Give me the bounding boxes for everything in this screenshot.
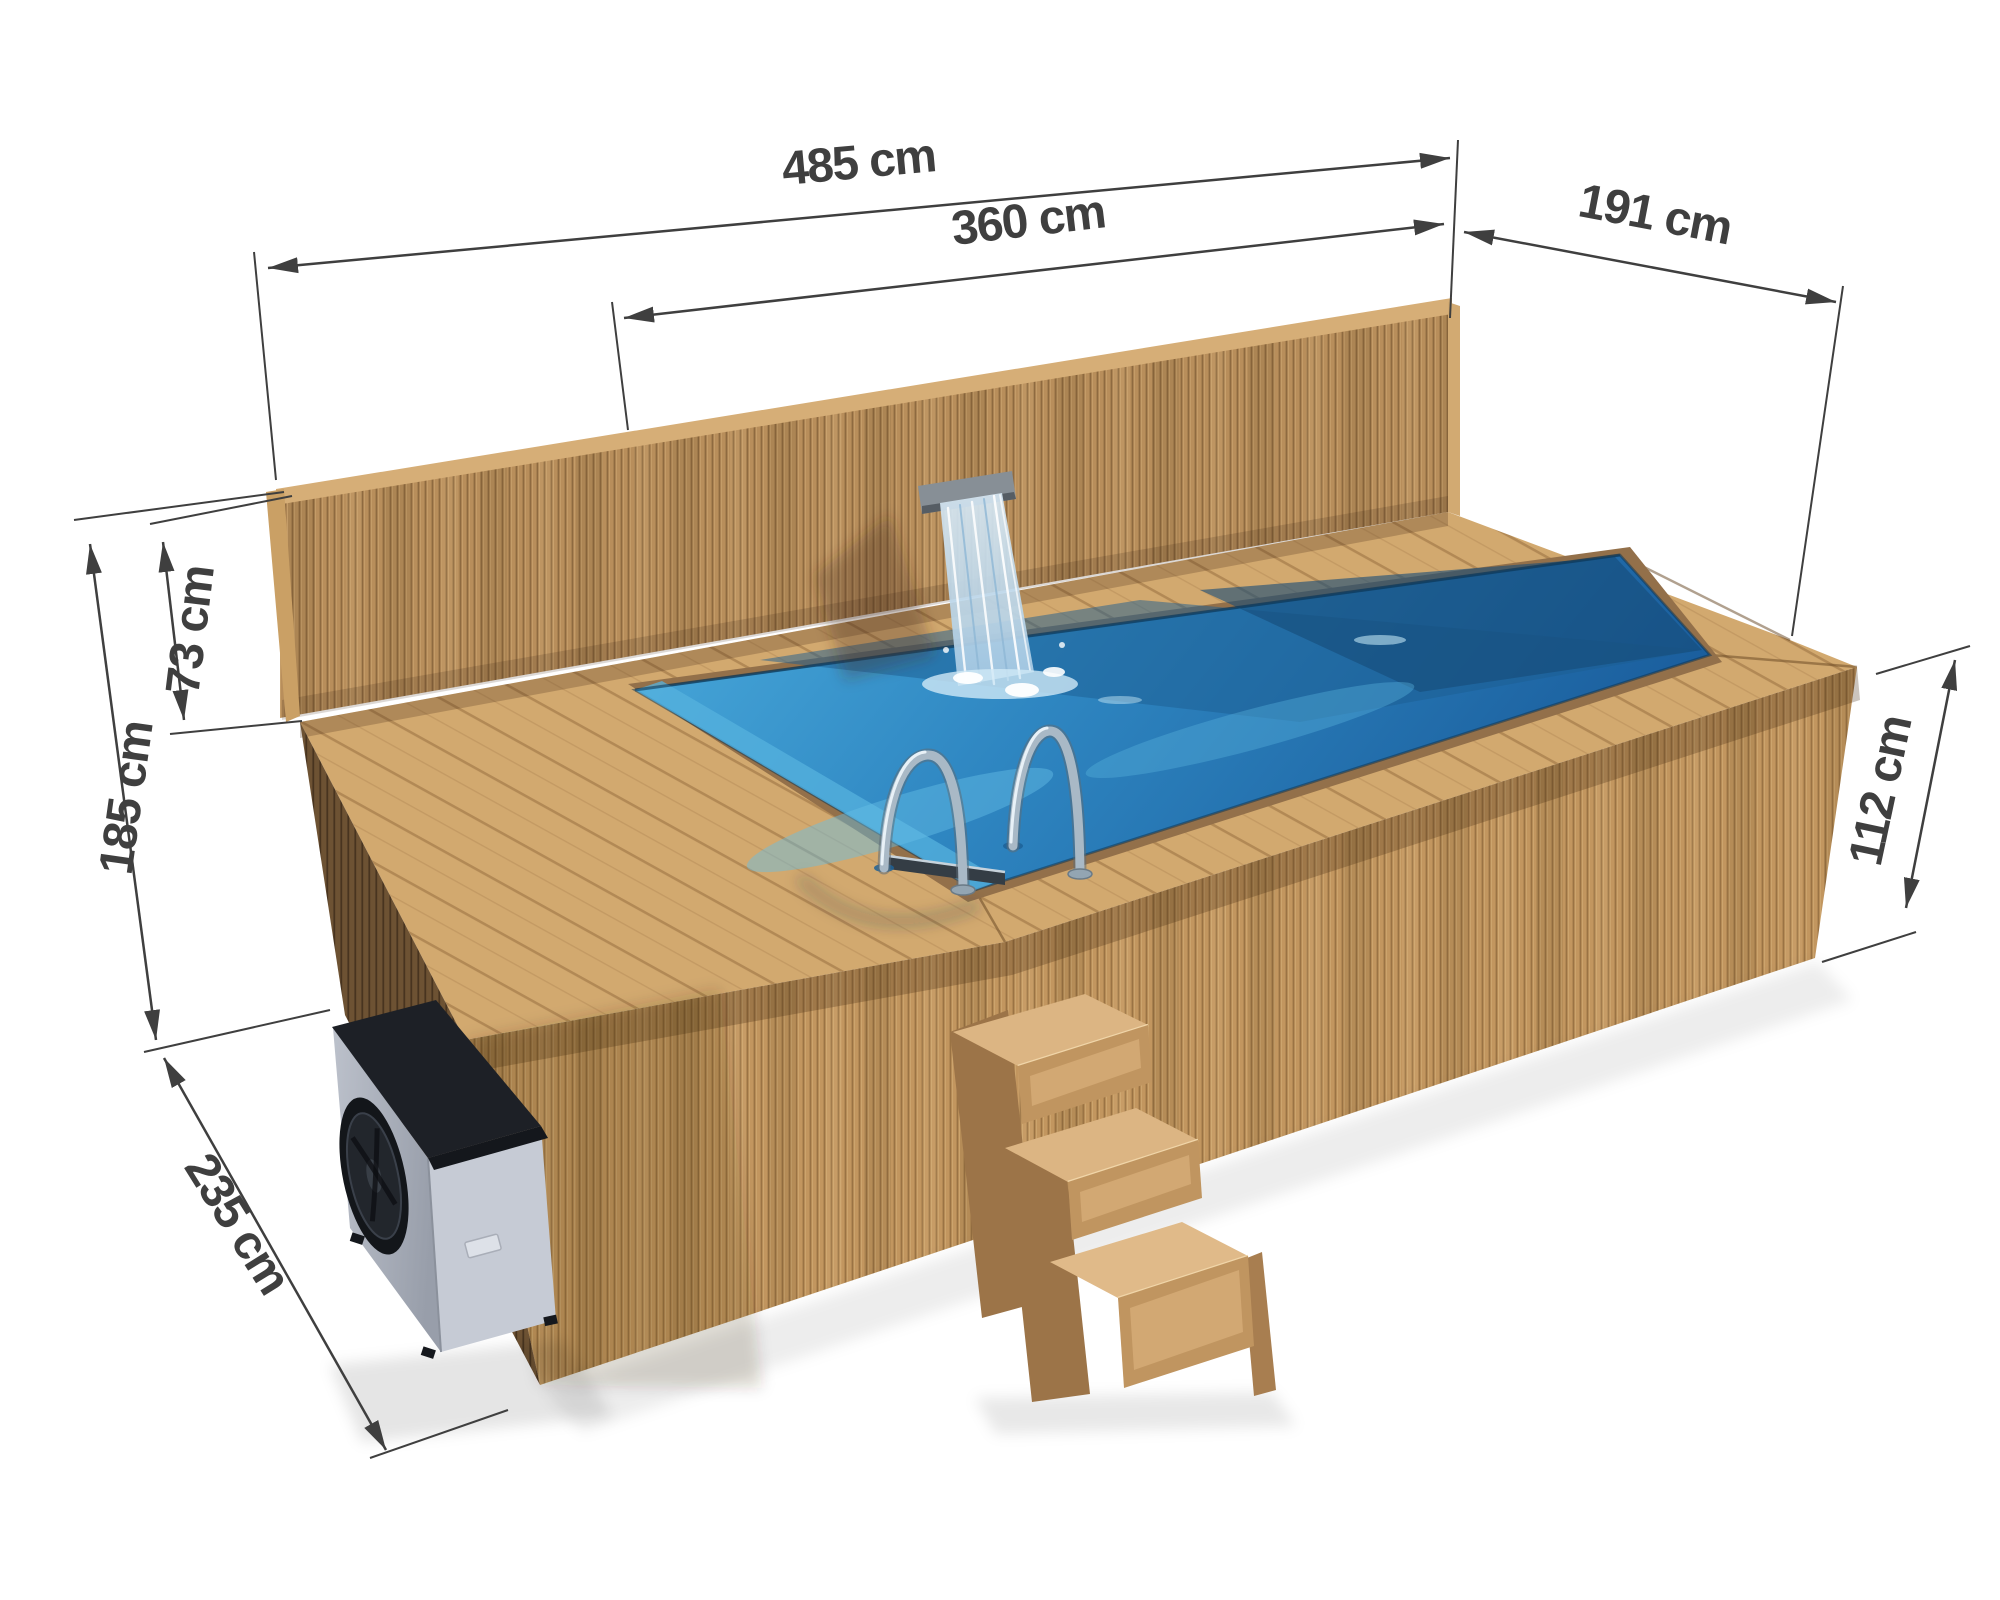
dimension-185: 185 cm [90, 544, 164, 1040]
water-glint-2 [1098, 696, 1142, 704]
splash-3 [1043, 667, 1065, 677]
dimension-label-ground-depth: 235 cm [174, 1145, 300, 1304]
steps-ground-shadow [975, 1392, 1296, 1434]
dimension-label-total-height: 185 cm [90, 718, 164, 878]
ladder-flange-2 [1068, 869, 1092, 879]
ext-485-left [254, 252, 276, 480]
dimension-label-inner-length: 360 cm [949, 185, 1108, 256]
splash-2 [1005, 683, 1039, 697]
droplet [943, 647, 949, 653]
ext-112-top [1876, 646, 1970, 674]
droplet-2 [1059, 642, 1065, 648]
dimension-label-body-height: 112 cm [1839, 711, 1922, 870]
ext-191-right [1792, 286, 1843, 636]
ext-73-bottom [170, 721, 302, 734]
dimension-label-width: 191 cm [1574, 174, 1735, 255]
ext-185-bottom [144, 1010, 330, 1052]
dimension-label-overall-length: 485 cm [780, 129, 938, 196]
pool-render: 485 cm 360 cm 191 cm 73 cm 185 cm 235 cm… [0, 0, 2000, 1600]
dimension-191: 191 cm [1464, 174, 1836, 302]
ext-360-left [612, 302, 628, 430]
ext-112-bottom [1822, 932, 1916, 962]
dimension-73: 73 cm [156, 542, 224, 720]
water-glint [1354, 635, 1406, 645]
ladder-flange [951, 885, 975, 895]
dimension-485: 485 cm [268, 129, 1450, 268]
ext-485-360-right [1450, 140, 1458, 318]
splash [953, 672, 983, 684]
wall-right-end [1448, 302, 1460, 516]
ext-185-top [74, 492, 284, 520]
dimension-360: 360 cm [624, 185, 1444, 318]
product-dimension-diagram: 485 cm 360 cm 191 cm 73 cm 185 cm 235 cm… [0, 0, 2000, 1600]
